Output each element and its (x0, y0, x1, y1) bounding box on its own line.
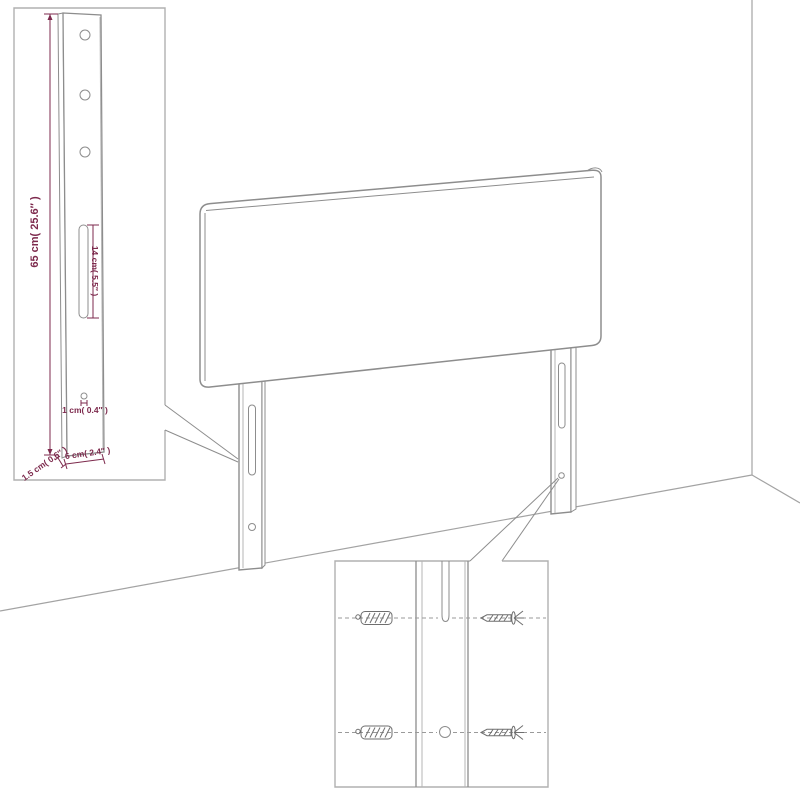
headboard-diagram: 65 cm( 25.6″ ) 14 cm( 5.5″ ) 1 cm( 0.4″ … (0, 0, 800, 800)
leg-strip-front-view (416, 561, 468, 787)
callout-leader-line (165, 405, 238, 459)
dimension-label-slot: 14 cm( 5.5″ ) (90, 246, 100, 297)
dimension-label-height: 65 cm( 25.6″ ) (29, 196, 41, 268)
callout-leader-line (470, 478, 558, 561)
diagram-canvas: 65 cm( 25.6″ ) 14 cm( 5.5″ ) 1 cm( 0.4″ … (0, 0, 800, 800)
headboard-right-leg (551, 346, 576, 514)
left-leg-side (262, 378, 265, 568)
leg-front-face (63, 13, 104, 456)
mounting-detail-inset (335, 561, 548, 787)
leg-detail-drawing (58, 13, 104, 458)
floor-line-right (752, 475, 800, 503)
headboard-panel (200, 168, 602, 387)
panel-outline (200, 170, 601, 387)
right-leg-side (571, 346, 576, 512)
floor-line-left (0, 475, 752, 611)
alignment-guides (338, 618, 546, 733)
leg-strip-slot (442, 561, 449, 622)
right-leg-front (551, 346, 571, 514)
left-leg-front (239, 378, 262, 570)
dimension-label-hole: 1 cm( 0.4″ ) (62, 405, 108, 415)
callout-leader-line (502, 479, 559, 561)
headboard-left-leg (239, 378, 265, 570)
callout-leader-line (165, 430, 238, 462)
leg-strip-hole (440, 727, 451, 738)
